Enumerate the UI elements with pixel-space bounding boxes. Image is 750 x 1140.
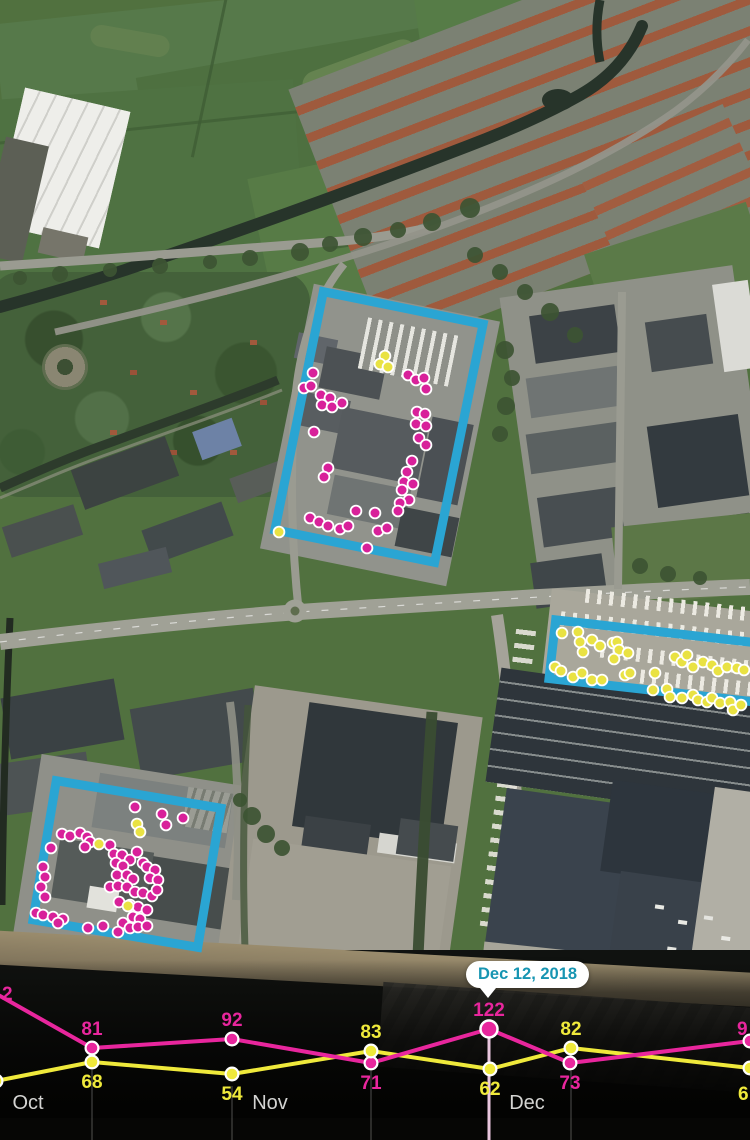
- chart-value-label: 71: [360, 1073, 382, 1094]
- map-dot-yellow[interactable]: [648, 685, 659, 696]
- chart-point-yellow[interactable]: [226, 1068, 239, 1081]
- chart-value-label: 54: [221, 1084, 243, 1105]
- chart-point-yellow[interactable]: [86, 1056, 99, 1069]
- map-dot-yellow[interactable]: [577, 668, 588, 679]
- map-dot-magenta[interactable]: [80, 842, 91, 853]
- map-dot-magenta[interactable]: [411, 419, 422, 430]
- map-dot-magenta[interactable]: [421, 384, 432, 395]
- map-dot-yellow[interactable]: [625, 668, 636, 679]
- map-dot-magenta[interactable]: [397, 485, 408, 496]
- map-dot-yellow[interactable]: [274, 527, 285, 538]
- chart-value-label: 122: [473, 1000, 505, 1021]
- map-dot-yellow[interactable]: [739, 665, 750, 676]
- date-tooltip: Dec 12, 2018: [466, 961, 589, 988]
- map-dot-yellow[interactable]: [383, 362, 394, 373]
- map-dot-magenta[interactable]: [337, 398, 348, 409]
- map-dot-magenta[interactable]: [323, 521, 334, 532]
- chart-point-yellow[interactable]: [744, 1062, 750, 1075]
- map-dot-yellow[interactable]: [682, 650, 693, 661]
- map-dot-magenta[interactable]: [113, 927, 124, 938]
- chart-point-yellow[interactable]: [484, 1063, 497, 1076]
- chart-point-yellow[interactable]: [365, 1045, 378, 1058]
- map-dot-yellow[interactable]: [123, 901, 134, 912]
- chart-value-label: 62: [479, 1079, 500, 1100]
- map-dot-magenta[interactable]: [152, 885, 163, 896]
- chart-value-label: 9: [737, 1019, 748, 1040]
- map-dot-magenta[interactable]: [420, 409, 431, 420]
- map-dot-magenta[interactable]: [382, 523, 393, 534]
- chart-point-yellow[interactable]: [0, 1075, 2, 1088]
- map-dot-yellow[interactable]: [688, 662, 699, 673]
- satellite-map-view: 281927112273968548362826OctNovDec Dec 12…: [0, 0, 750, 1140]
- map-dot-yellow[interactable]: [736, 700, 747, 711]
- map-dot-magenta[interactable]: [38, 862, 49, 873]
- chart-month-label: Nov: [252, 1092, 288, 1114]
- map-dot-magenta[interactable]: [343, 521, 354, 532]
- map-dot-yellow[interactable]: [597, 675, 608, 686]
- map-dot-magenta[interactable]: [393, 506, 404, 517]
- map-dot-magenta[interactable]: [161, 820, 172, 831]
- chart-value-label: 6: [738, 1084, 749, 1105]
- chart-value-label: 81: [81, 1019, 103, 1040]
- chart-point-yellow[interactable]: [565, 1042, 578, 1055]
- map-dot-yellow[interactable]: [650, 668, 661, 679]
- chart-value-label: 2: [2, 984, 13, 1005]
- map-dot-magenta[interactable]: [419, 373, 430, 384]
- map-dot-magenta[interactable]: [308, 368, 319, 379]
- chart-value-label: 68: [81, 1072, 102, 1093]
- chart-point-magenta-highlight[interactable]: [481, 1021, 498, 1038]
- chart-month-label: Dec: [509, 1092, 545, 1114]
- map-dot-magenta[interactable]: [83, 923, 94, 934]
- map-dot-yellow[interactable]: [677, 693, 688, 704]
- map-dot-magenta[interactable]: [98, 921, 109, 932]
- map-dot-magenta[interactable]: [40, 892, 51, 903]
- map-dot-magenta[interactable]: [46, 843, 57, 854]
- map-dot-magenta[interactable]: [157, 809, 168, 820]
- map-dot-magenta[interactable]: [317, 400, 328, 411]
- map-dot-yellow[interactable]: [578, 647, 589, 658]
- map-dot-yellow[interactable]: [94, 839, 105, 850]
- map-dot-yellow[interactable]: [665, 692, 676, 703]
- chart-point-magenta[interactable]: [86, 1042, 99, 1055]
- map-dot-magenta[interactable]: [142, 921, 153, 932]
- chart-point-magenta[interactable]: [564, 1057, 577, 1070]
- map-dot-magenta[interactable]: [408, 479, 419, 490]
- map-dot-magenta[interactable]: [362, 543, 373, 554]
- map-dot-magenta[interactable]: [306, 381, 317, 392]
- map-dot-magenta[interactable]: [421, 440, 432, 451]
- chart-value-label: 82: [560, 1019, 581, 1040]
- map-dot-magenta[interactable]: [421, 421, 432, 432]
- chart-month-label: Oct: [12, 1092, 44, 1114]
- map-dot-yellow[interactable]: [609, 654, 620, 665]
- map-dot-magenta[interactable]: [178, 813, 189, 824]
- map-dot-yellow[interactable]: [573, 627, 584, 638]
- map-dot-magenta[interactable]: [38, 910, 49, 921]
- map-dot-yellow[interactable]: [556, 666, 567, 677]
- map-dot-yellow[interactable]: [623, 648, 634, 659]
- map-dot-magenta[interactable]: [370, 508, 381, 519]
- chart-point-magenta[interactable]: [365, 1057, 378, 1070]
- chart-value-label: 83: [360, 1022, 381, 1043]
- map-dot-yellow[interactable]: [557, 628, 568, 639]
- map-dot-yellow[interactable]: [595, 641, 606, 652]
- map-dot-magenta[interactable]: [319, 472, 330, 483]
- map-dot-magenta[interactable]: [130, 802, 141, 813]
- map-dot-magenta[interactable]: [351, 506, 362, 517]
- chart-value-label: 73: [559, 1073, 580, 1094]
- chart-point-magenta[interactable]: [226, 1033, 239, 1046]
- map-dot-yellow[interactable]: [135, 827, 146, 838]
- map-dot-magenta[interactable]: [53, 918, 64, 929]
- chart-value-label: 92: [221, 1010, 242, 1031]
- map-dot-magenta[interactable]: [309, 427, 320, 438]
- map-dot-magenta[interactable]: [407, 456, 418, 467]
- data-overlay: 281927112273968548362826OctNovDec: [0, 0, 750, 1140]
